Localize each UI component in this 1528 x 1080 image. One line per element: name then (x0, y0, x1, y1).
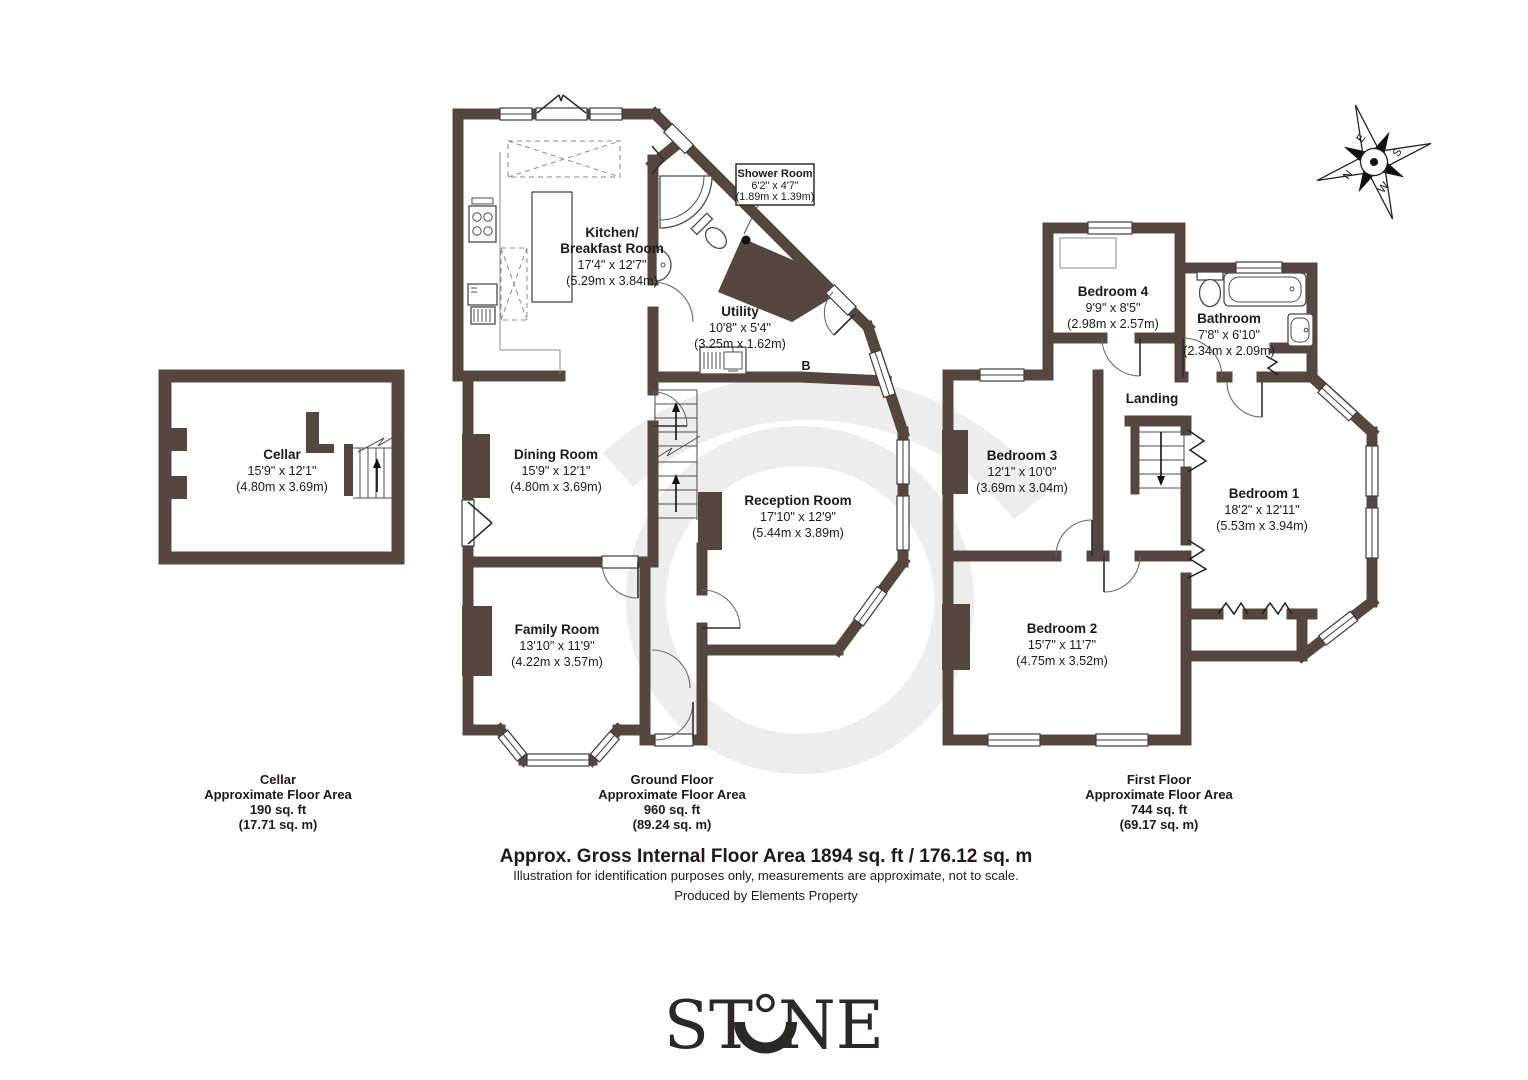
cellar-footer: Cellar Approximate Floor Area 190 sq. ft… (204, 772, 352, 832)
door-swing (653, 282, 693, 322)
chimney-breast (462, 606, 492, 676)
window (1096, 734, 1148, 746)
sink-unit-icon (700, 347, 746, 374)
room-name: Family Room (515, 622, 600, 637)
room-size-ft: 12'1" x 10'0" (987, 465, 1056, 479)
room-label-bathroom: Bathroom 7'8" x 6'10" (2.34m x 2.09m) (1183, 311, 1275, 358)
room-label-bedroom1: Bedroom 1 18'2" x 12'11" (5.53m x 3.94m) (1216, 486, 1308, 533)
skylight (508, 141, 620, 177)
room-size-ft: 17'10" x 12'9" (760, 510, 836, 524)
chimney-breast (462, 434, 490, 498)
window (1366, 446, 1378, 496)
door-stop (742, 236, 751, 245)
shower-room-callout: Shower Room 6'2" x 4'7" (1.89m x 1.39m) (736, 164, 815, 234)
first-floor-plan: Bedroom 4 9'9" x 8'5" (2.98m x 2.57m) Ba… (942, 222, 1378, 746)
logo-text-ne: NE (778, 987, 884, 1064)
room-label-bedroom2: Bedroom 2 15'7" x 11'7" (4.75m x 3.52m) (1016, 621, 1108, 668)
toilet-icon (1197, 272, 1223, 307)
sink-icon (1288, 314, 1313, 346)
room-size-m: (3.69m x 3.04m) (976, 481, 1068, 495)
room-size-m: (5.53m x 3.94m) (1216, 519, 1308, 533)
door-swing (462, 500, 492, 546)
room-size-m: (4.22m x 3.57m) (511, 655, 603, 669)
hob-icon (469, 198, 496, 242)
stairs-icon (1139, 426, 1184, 490)
gross-area-title: Approx. Gross Internal Floor Area 1894 s… (500, 846, 1033, 867)
room-size-ft: 13'10" x 11'9" (519, 639, 594, 653)
window (1366, 508, 1378, 558)
floor-area-ft: 960 sq. ft (644, 802, 701, 817)
floor-area-label: Approximate Floor Area (598, 787, 746, 802)
door-swing (824, 285, 856, 335)
window (498, 730, 526, 761)
room-label-bedroom3: Bedroom 3 12'1" x 10'0" (3.69m x 3.04m) (976, 448, 1068, 495)
floor-area-m: (17.71 sq. m) (239, 817, 318, 832)
room-name: Shower Room (737, 168, 812, 180)
door-swing (1102, 338, 1140, 376)
room-name: Breakfast Room (560, 241, 664, 256)
room-name: Kitchen/ (585, 225, 639, 240)
floor-area-m: (89.24 sq. m) (633, 817, 712, 832)
bed-icon (1060, 238, 1116, 268)
room-size-m: (4.80m x 3.69m) (510, 480, 602, 494)
room-name: Reception Room (744, 493, 851, 508)
room-name: Bathroom (1197, 311, 1261, 326)
room-size-ft: 10'8" x 5'4" (709, 321, 771, 335)
bath-icon (1224, 273, 1306, 306)
window (1088, 222, 1132, 234)
stone-logo: ST NE (664, 987, 884, 1064)
window (980, 369, 1024, 381)
window (500, 108, 532, 120)
ground-floor-footer: Ground Floor Approximate Floor Area 960 … (598, 772, 746, 832)
room-size-m: (2.98m x 2.57m) (1067, 317, 1159, 331)
room-size-m: (1.89m x 1.39m) (736, 191, 815, 203)
room-label-family: Family Room 13'10" x 11'9" (4.22m x 3.57… (511, 622, 603, 669)
window (527, 754, 589, 766)
summary-block: Approx. Gross Internal Floor Area 1894 s… (500, 846, 1033, 903)
room-name: Cellar (263, 447, 301, 462)
skylight (501, 248, 527, 320)
room-name: Bedroom 4 (1078, 284, 1149, 299)
door-swing (702, 590, 740, 628)
floor-area-ft: 744 sq. ft (1131, 802, 1188, 817)
window (854, 586, 887, 625)
first-floor-footer: First Floor Approximate Floor Area 744 s… (1085, 772, 1233, 832)
floor-title: Ground Floor (630, 772, 713, 787)
room-size-ft: 17'4" x 12'7" (577, 258, 646, 272)
window (1318, 384, 1357, 421)
floorplan-canvas: Cellar 15'9" x 12'1" (4.80m x 3.69m) (0, 0, 1528, 1080)
room-label-reception: Reception Room 17'10" x 12'9" (5.44m x 3… (744, 493, 851, 540)
compass-icon: E S W N (1298, 86, 1449, 237)
room-name: Bedroom 2 (1027, 621, 1098, 636)
room-size-m: (3.25m x 1.62m) (694, 337, 786, 351)
window (897, 496, 909, 550)
room-size-m: (4.75m x 3.52m) (1016, 654, 1108, 668)
room-name: Utility (721, 304, 759, 319)
window (897, 440, 909, 484)
window (1236, 262, 1282, 274)
room-size-m: (4.80m x 3.69m) (236, 480, 328, 494)
floor-title: Cellar (260, 772, 296, 787)
floor-area-label: Approximate Floor Area (204, 787, 352, 802)
window (1319, 611, 1358, 645)
disclaimer-text: Illustration for identification purposes… (513, 868, 1019, 883)
wardrobe-icon (1188, 430, 1206, 472)
room-size-ft: 15'7" x 11'7" (1028, 638, 1096, 652)
floor-area-m: (69.17 sq. m) (1120, 817, 1199, 832)
window (590, 108, 622, 120)
room-label-landing: Landing (1126, 391, 1179, 406)
boiler-label: B (801, 359, 810, 373)
toilet-icon (691, 213, 732, 254)
room-size-ft: 7'8" x 6'10" (1198, 328, 1260, 342)
cellar-plan: Cellar 15'9" x 12'1" (4.80m x 3.69m) (165, 376, 402, 558)
wardrobe-icon (1188, 540, 1206, 578)
room-name: Bedroom 3 (987, 448, 1058, 463)
chimney-breast (942, 430, 968, 494)
floor-title: First Floor (1127, 772, 1191, 787)
watermark (618, 397, 1032, 754)
room-name: Bedroom 1 (1229, 486, 1300, 501)
door-swing (1227, 382, 1262, 417)
wall-pier (698, 492, 722, 550)
floor-area-ft: 190 sq. ft (250, 802, 307, 817)
room-size-ft: 15'9" x 12'1" (521, 464, 590, 478)
chimney-breast (165, 428, 187, 451)
chimney-breast (942, 604, 970, 670)
room-name: Dining Room (514, 447, 598, 462)
window (988, 734, 1040, 746)
french-doors (536, 95, 587, 120)
room-label-dining: Dining Room 15'9" x 12'1" (4.80m x 3.69m… (510, 447, 602, 494)
room-size-m: (5.29m x 3.84m) (566, 274, 658, 288)
room-size-m: (2.34m x 2.09m) (1183, 344, 1275, 358)
wall-pier (306, 444, 334, 453)
window (590, 731, 619, 762)
floorplan-page: Cellar 15'9" x 12'1" (4.80m x 3.69m) (0, 0, 1528, 1080)
appliance-icon (468, 284, 497, 324)
room-size-ft: 9'9" x 8'5" (1085, 301, 1140, 315)
room-size-ft: 15'9" x 12'1" (247, 464, 316, 478)
chimney-breast (165, 476, 187, 499)
floor-area-label: Approximate Floor Area (1085, 787, 1233, 802)
room-size-ft: 18'2" x 12'11" (1224, 503, 1299, 517)
room-size-m: (5.44m x 3.89m) (752, 526, 844, 540)
producer-text: Produced by Elements Property (674, 888, 858, 903)
room-label-bedroom4: Bedroom 4 9'9" x 8'5" (2.98m x 2.57m) (1067, 284, 1159, 331)
room-label-cellar: Cellar 15'9" x 12'1" (4.80m x 3.69m) (236, 447, 328, 494)
